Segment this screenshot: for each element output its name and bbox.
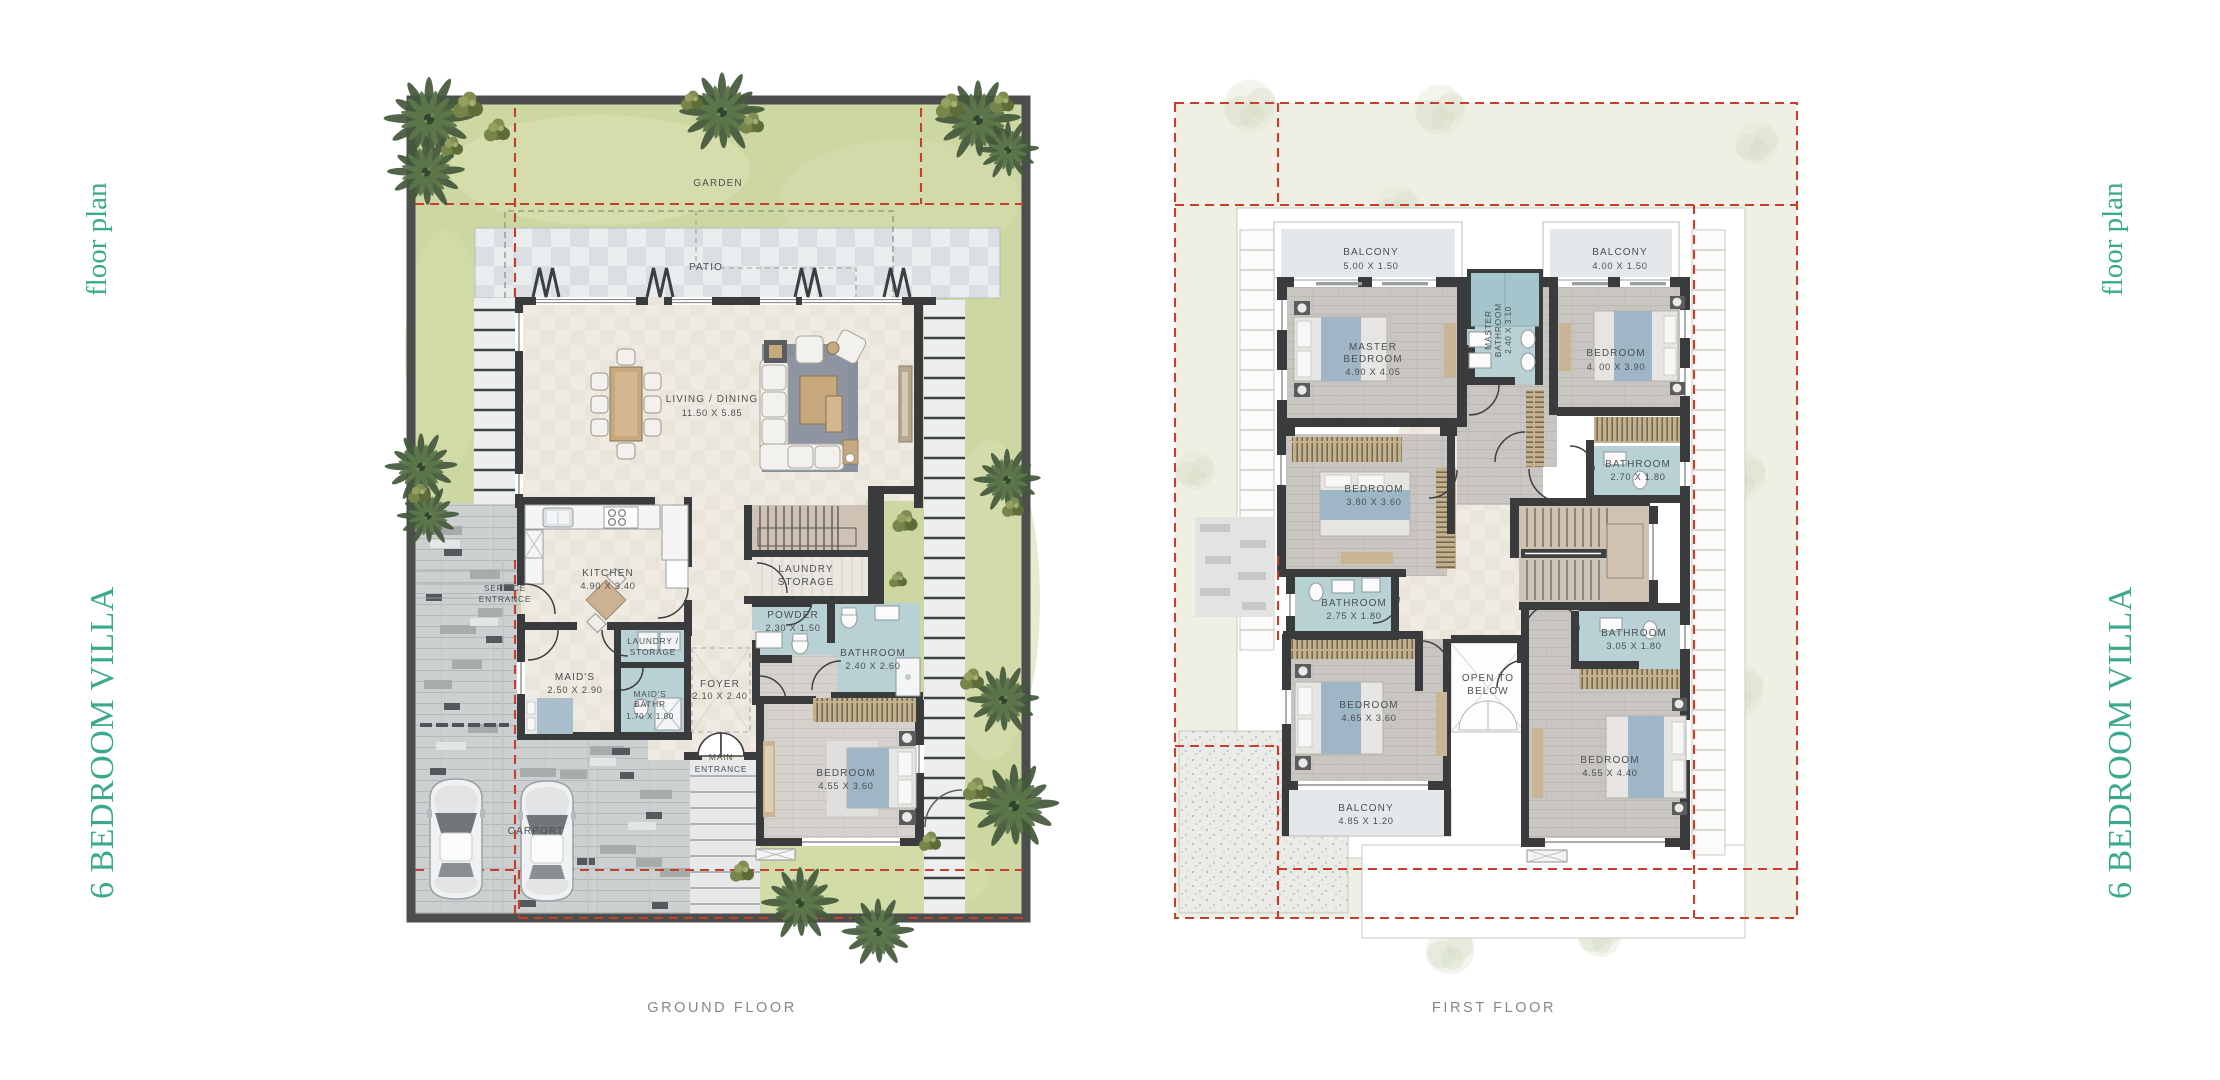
svg-text:FIRST FLOOR: FIRST FLOOR xyxy=(1432,1000,1556,1016)
svg-text:BEDROOM: BEDROOM xyxy=(816,768,875,779)
svg-text:2.75 X 1.80: 2.75 X 1.80 xyxy=(1326,611,1381,621)
svg-text:KITCHEN: KITCHEN xyxy=(582,568,634,579)
svg-text:2.30 X 1.50: 2.30 X 1.50 xyxy=(765,623,820,633)
svg-text:BELOW: BELOW xyxy=(1467,686,1509,697)
svg-text:4.65 X 3.60: 4.65 X 3.60 xyxy=(1341,713,1396,723)
svg-text:4. 00 X 3.90: 4. 00 X 3.90 xyxy=(1587,362,1646,372)
svg-text:LAUNDRY: LAUNDRY xyxy=(778,564,833,575)
svg-text:MAID'S: MAID'S xyxy=(555,672,595,683)
svg-text:BEDROOM: BEDROOM xyxy=(1339,700,1398,711)
svg-text:4.85 X 1.20: 4.85 X 1.20 xyxy=(1338,816,1393,826)
svg-text:1.70 X 1.80: 1.70 X 1.80 xyxy=(626,712,673,721)
svg-text:2.70 X 1.80: 2.70 X 1.80 xyxy=(1610,472,1665,482)
svg-text:BEDROOM: BEDROOM xyxy=(1580,755,1639,766)
svg-text:MAIN: MAIN xyxy=(709,752,733,762)
svg-text:4.00 X 1.50: 4.00 X 1.50 xyxy=(1592,261,1647,271)
svg-text:BEDROOM: BEDROOM xyxy=(1344,484,1403,495)
svg-text:11.50 X 5.85: 11.50 X 5.85 xyxy=(682,408,742,418)
svg-text:FOYER: FOYER xyxy=(700,679,740,690)
svg-text:CARPORT: CARPORT xyxy=(508,826,564,837)
svg-text:SERVICE: SERVICE xyxy=(484,583,526,593)
svg-text:6 BEDROOM VILLA: 6 BEDROOM VILLA xyxy=(2102,586,2139,899)
svg-text:BEDROOM: BEDROOM xyxy=(1343,354,1402,365)
svg-text:3.80 X 3.60: 3.80 X 3.60 xyxy=(1346,497,1401,507)
svg-text:floor plan: floor plan xyxy=(81,182,113,296)
svg-text:LIVING / DINING: LIVING / DINING xyxy=(666,394,759,405)
svg-text:BATHROOM: BATHROOM xyxy=(1605,459,1671,470)
svg-text:POWDER: POWDER xyxy=(767,610,819,621)
svg-text:OPEN TO: OPEN TO xyxy=(1462,673,1514,684)
svg-text:BALCONY: BALCONY xyxy=(1592,247,1648,258)
svg-text:BATHROOM: BATHROOM xyxy=(1601,628,1667,639)
svg-text:2.10 X 2.40: 2.10 X 2.40 xyxy=(692,691,747,701)
svg-text:BATHR: BATHR xyxy=(634,699,666,709)
svg-text:2.40 X 2.60: 2.40 X 2.60 xyxy=(845,661,900,671)
svg-text:GARDEN: GARDEN xyxy=(693,178,742,189)
svg-text:MAID'S: MAID'S xyxy=(634,689,667,699)
svg-text:6 BEDROOM VILLA: 6 BEDROOM VILLA xyxy=(84,586,121,899)
svg-text:4.55 X 3.60: 4.55 X 3.60 xyxy=(818,781,873,791)
svg-text:4.90 X 4.05: 4.90 X 4.05 xyxy=(1345,367,1400,377)
svg-text:3.05 X 1.80: 3.05 X 1.80 xyxy=(1606,641,1661,651)
svg-text:2.40 X 3.10: 2.40 X 3.10 xyxy=(1504,306,1513,353)
svg-text:GROUND FLOOR: GROUND FLOOR xyxy=(647,1000,797,1016)
svg-text:PATIO: PATIO xyxy=(689,262,723,273)
svg-text:2.50 X 2.90: 2.50 X 2.90 xyxy=(547,685,602,695)
svg-text:ENTRANCE: ENTRANCE xyxy=(695,764,747,774)
svg-text:5.00 X 1.50: 5.00 X 1.50 xyxy=(1343,261,1398,271)
svg-text:STORAGE: STORAGE xyxy=(630,647,676,657)
svg-text:BALCONY: BALCONY xyxy=(1343,247,1399,258)
svg-text:BATHROOM: BATHROOM xyxy=(1321,598,1387,609)
svg-text:MASTER: MASTER xyxy=(1349,342,1397,353)
svg-text:4.55 X 4.40: 4.55 X 4.40 xyxy=(1582,768,1637,778)
svg-text:floor plan: floor plan xyxy=(2097,182,2129,296)
svg-text:MASTER: MASTER xyxy=(1483,310,1493,350)
svg-text:ENTRANCE: ENTRANCE xyxy=(479,594,531,604)
svg-text:4.90 X 3.40: 4.90 X 3.40 xyxy=(580,581,635,591)
svg-text:STORAGE: STORAGE xyxy=(778,577,834,588)
svg-text:BATHROOM: BATHROOM xyxy=(840,648,906,659)
svg-text:LAUNDRY /: LAUNDRY / xyxy=(627,636,679,646)
svg-text:BALCONY: BALCONY xyxy=(1338,803,1394,814)
svg-text:BATHROOM: BATHROOM xyxy=(1493,303,1503,357)
svg-text:BEDROOM: BEDROOM xyxy=(1586,348,1645,359)
